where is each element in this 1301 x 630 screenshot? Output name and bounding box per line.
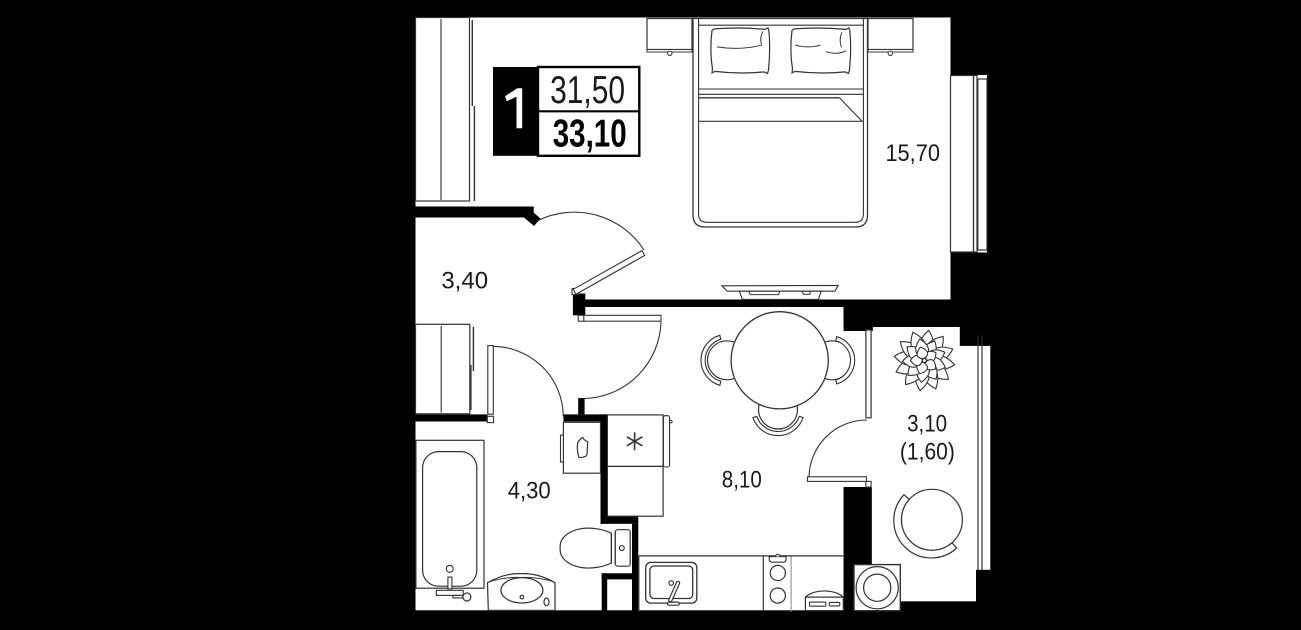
svg-text:(1,60): (1,60) [900,439,955,466]
svg-text:3,40: 3,40 [441,267,488,294]
svg-text:8,10: 8,10 [722,467,762,494]
svg-text:3,10: 3,10 [907,411,947,438]
svg-text:4,30: 4,30 [508,478,551,505]
svg-text:31,50: 31,50 [550,69,625,112]
svg-text:15,70: 15,70 [885,140,940,167]
svg-text:33,10: 33,10 [553,113,627,156]
